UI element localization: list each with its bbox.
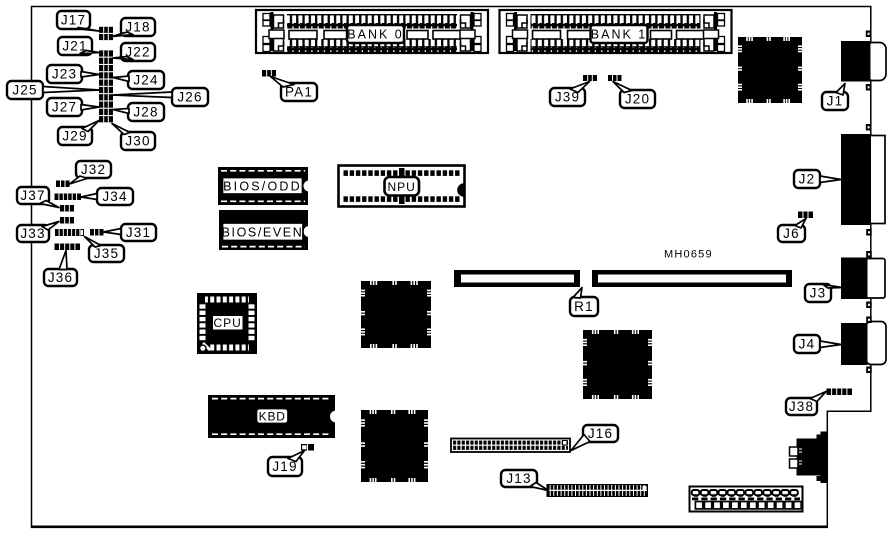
svg-text:R1: R1 [574,299,594,314]
svg-text:J31: J31 [126,225,151,240]
svg-text:J36: J36 [48,270,73,285]
svg-text:J26: J26 [177,90,202,105]
svg-text:J1: J1 [827,94,844,109]
svg-text:J23: J23 [52,67,77,82]
svg-text:J27: J27 [52,100,77,115]
svg-text:J2: J2 [799,172,816,187]
svg-text:PA1: PA1 [285,85,313,100]
svg-text:J25: J25 [12,83,37,98]
svg-text:J30: J30 [125,134,150,149]
svg-text:J34: J34 [102,189,127,204]
svg-text:J3: J3 [810,286,827,301]
svg-text:J16: J16 [588,426,613,441]
svg-text:J38: J38 [789,399,814,414]
svg-text:BANK 0: BANK 0 [347,28,403,42]
svg-text:J17: J17 [61,13,86,28]
svg-text:BANK 1: BANK 1 [591,28,647,42]
svg-text:MH0659: MH0659 [664,249,713,261]
svg-text:KBD: KBD [259,410,286,424]
svg-text:J28: J28 [133,105,158,120]
svg-text:NPU: NPU [388,180,416,194]
svg-text:BIOS/EVEN: BIOS/EVEN [222,226,304,240]
svg-text:J32: J32 [81,162,106,177]
svg-text:J20: J20 [625,92,650,107]
svg-text:J13: J13 [506,471,531,486]
svg-text:J24: J24 [133,73,158,88]
svg-text:J33: J33 [20,226,45,241]
svg-text:J6: J6 [783,226,800,241]
svg-text:J37: J37 [20,188,45,203]
svg-text:CPU: CPU [214,316,242,330]
svg-text:J35: J35 [94,246,119,261]
svg-text:J29: J29 [62,129,87,144]
svg-text:J4: J4 [799,337,816,352]
svg-text:BIOS/ODD: BIOS/ODD [223,180,302,194]
